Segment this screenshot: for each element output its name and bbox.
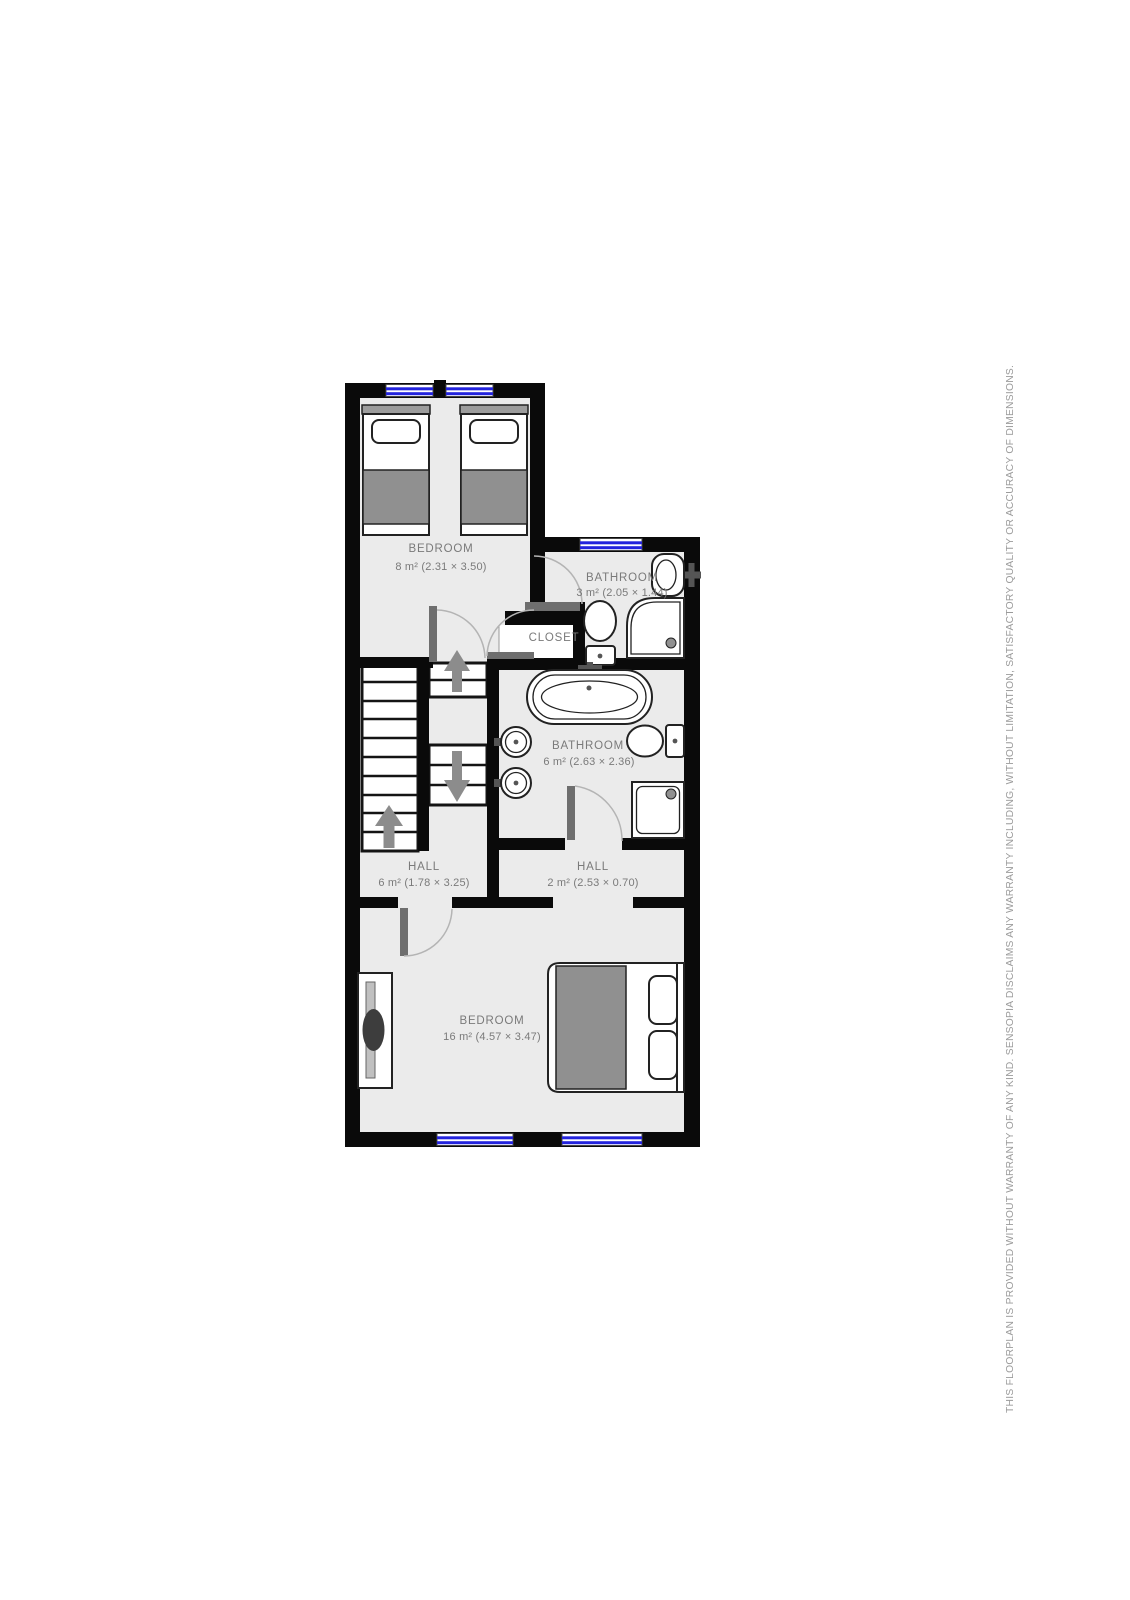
bathtub-icon — [527, 662, 652, 724]
wall-stairs-mid — [418, 660, 429, 851]
twin-bed-1 — [362, 405, 430, 535]
window-top-right — [446, 385, 493, 397]
floorplan-canvas: BEDROOM 8 m² (2.31 × 3.50) BATHROOM 3 m²… — [0, 0, 1130, 1600]
room-label-bedroom-top: BEDROOM — [408, 543, 473, 555]
wardrobe-icon — [358, 973, 392, 1088]
window-bottom-left — [437, 1134, 513, 1146]
wall-bottom — [345, 1132, 700, 1147]
room-label-bathroom-small: BATHROOM — [586, 572, 658, 584]
door-bathroom-main — [567, 786, 575, 840]
wall-bedroom-right — [530, 383, 545, 607]
twin-bed-2 — [460, 405, 528, 535]
page: { "canvas": { "width": 1130, "height": 1… — [0, 0, 1130, 1600]
room-label-hall-right: HALL — [577, 861, 609, 873]
window-bottom-right — [562, 1134, 642, 1146]
wall-bathroom-main-bottom-left — [499, 838, 565, 850]
door-closet — [487, 652, 534, 659]
wall-hall-bottom-1 — [360, 897, 398, 908]
room-dims-bedroom-master: 16 m² (4.57 × 3.47) — [443, 1031, 541, 1043]
disclaimer-text: THIS FLOORPLAN IS PROVIDED WITHOUT WARRA… — [1005, 365, 1016, 1413]
wall-central — [487, 657, 499, 897]
room-dims-bathroom-main: 6 m² (2.63 × 2.36) — [543, 756, 634, 768]
room-dims-bathroom-small: 3 m² (2.05 × 1.44) — [576, 587, 667, 599]
room-label-closet: CLOSET — [529, 632, 580, 644]
wall-hall-bottom-2 — [452, 897, 553, 908]
toilet-icon — [584, 601, 616, 665]
room-label-hall-left: HALL — [408, 861, 440, 873]
door-bedroom-master — [400, 908, 408, 956]
corner-shower-icon — [627, 598, 684, 658]
wall-bedroom-bottom — [360, 657, 433, 668]
toilet-icon — [627, 725, 684, 757]
room-dims-bedroom-top: 8 m² (2.31 × 3.50) — [395, 561, 486, 573]
room-label-bedroom-master: BEDROOM — [459, 1015, 524, 1027]
window-post — [434, 380, 446, 398]
room-dims-hall-right: 2 m² (2.53 × 0.70) — [547, 877, 638, 889]
wall-right — [684, 537, 700, 1147]
shower-icon — [632, 782, 684, 838]
double-bed — [548, 963, 684, 1092]
window-top-left — [386, 385, 433, 397]
room-dims-hall-left: 6 m² (1.78 × 3.25) — [378, 877, 469, 889]
door-bedroom-top — [429, 606, 437, 662]
window-bathroom-small — [580, 539, 642, 551]
wall-hall-bottom-3 — [633, 897, 684, 908]
wall-bathroom-main-bottom-right — [622, 838, 684, 850]
room-label-bathroom-main: BATHROOM — [552, 740, 624, 752]
